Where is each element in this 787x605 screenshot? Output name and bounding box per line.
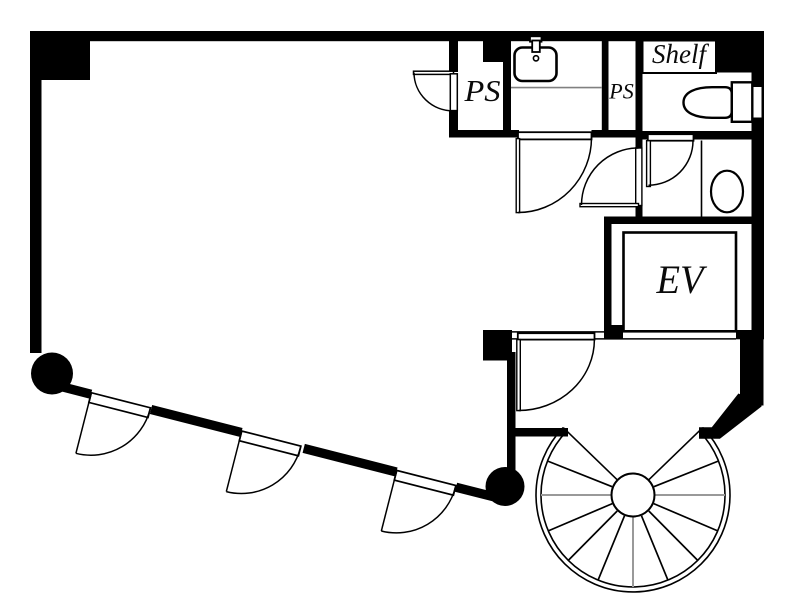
svg-text:Shelf: Shelf [652, 39, 709, 69]
svg-text:PS: PS [463, 73, 500, 108]
svg-text:EV: EV [656, 257, 708, 302]
svg-text:PS: PS [608, 79, 633, 104]
